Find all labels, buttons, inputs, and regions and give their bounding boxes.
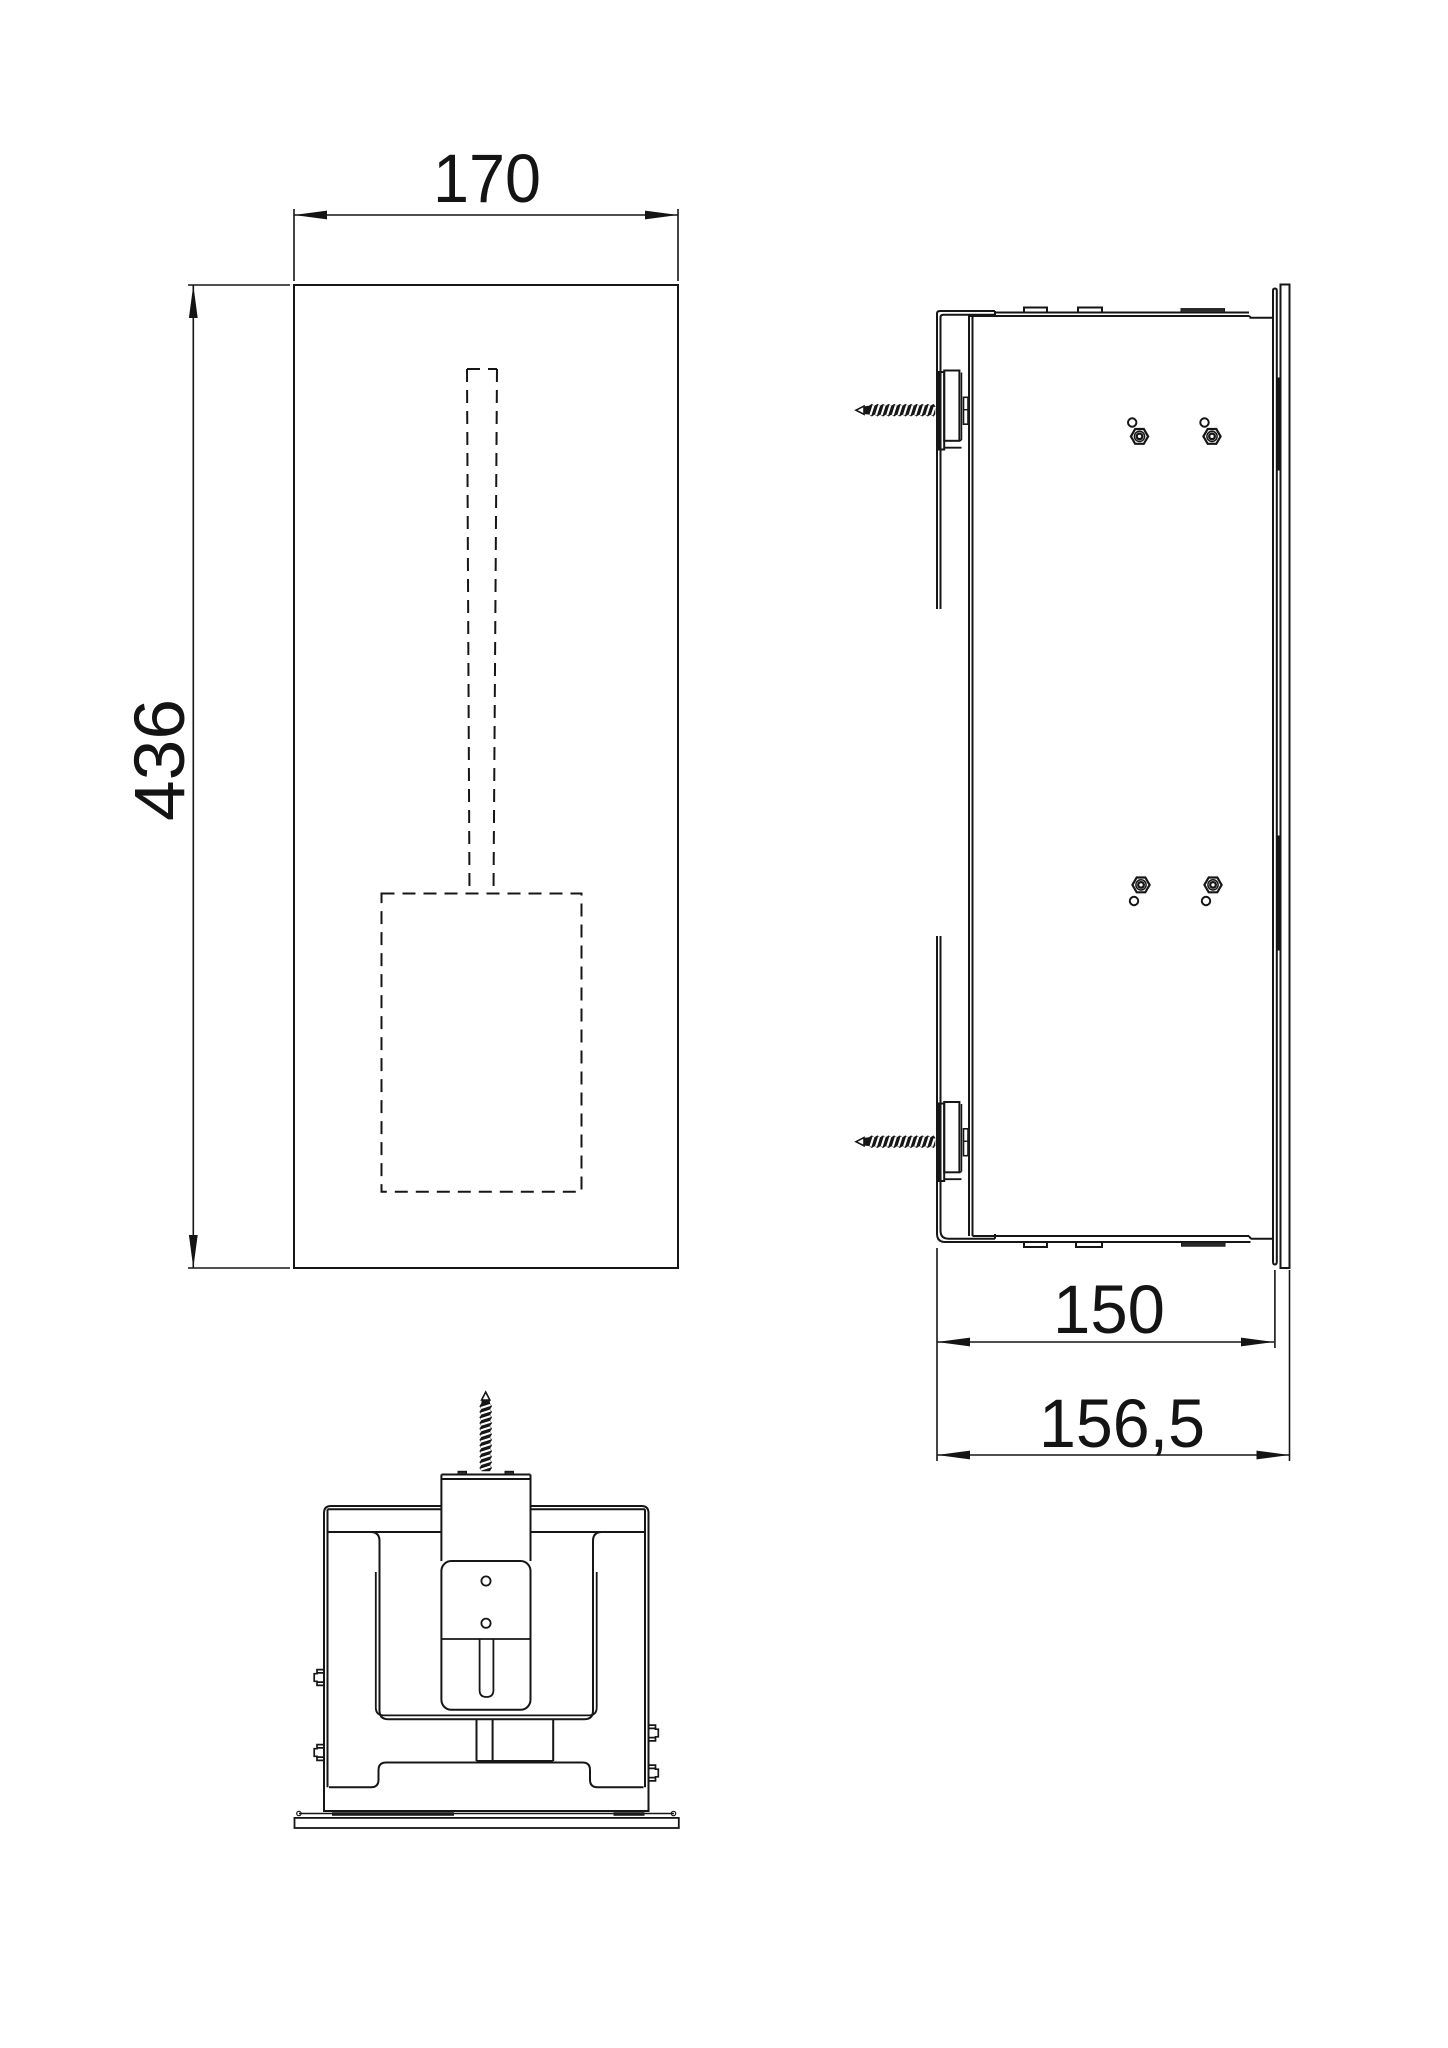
- svg-text:170: 170: [433, 140, 541, 217]
- svg-text:156,5: 156,5: [1039, 1385, 1205, 1462]
- svg-text:436: 436: [121, 699, 200, 821]
- svg-text:150: 150: [1053, 1271, 1165, 1348]
